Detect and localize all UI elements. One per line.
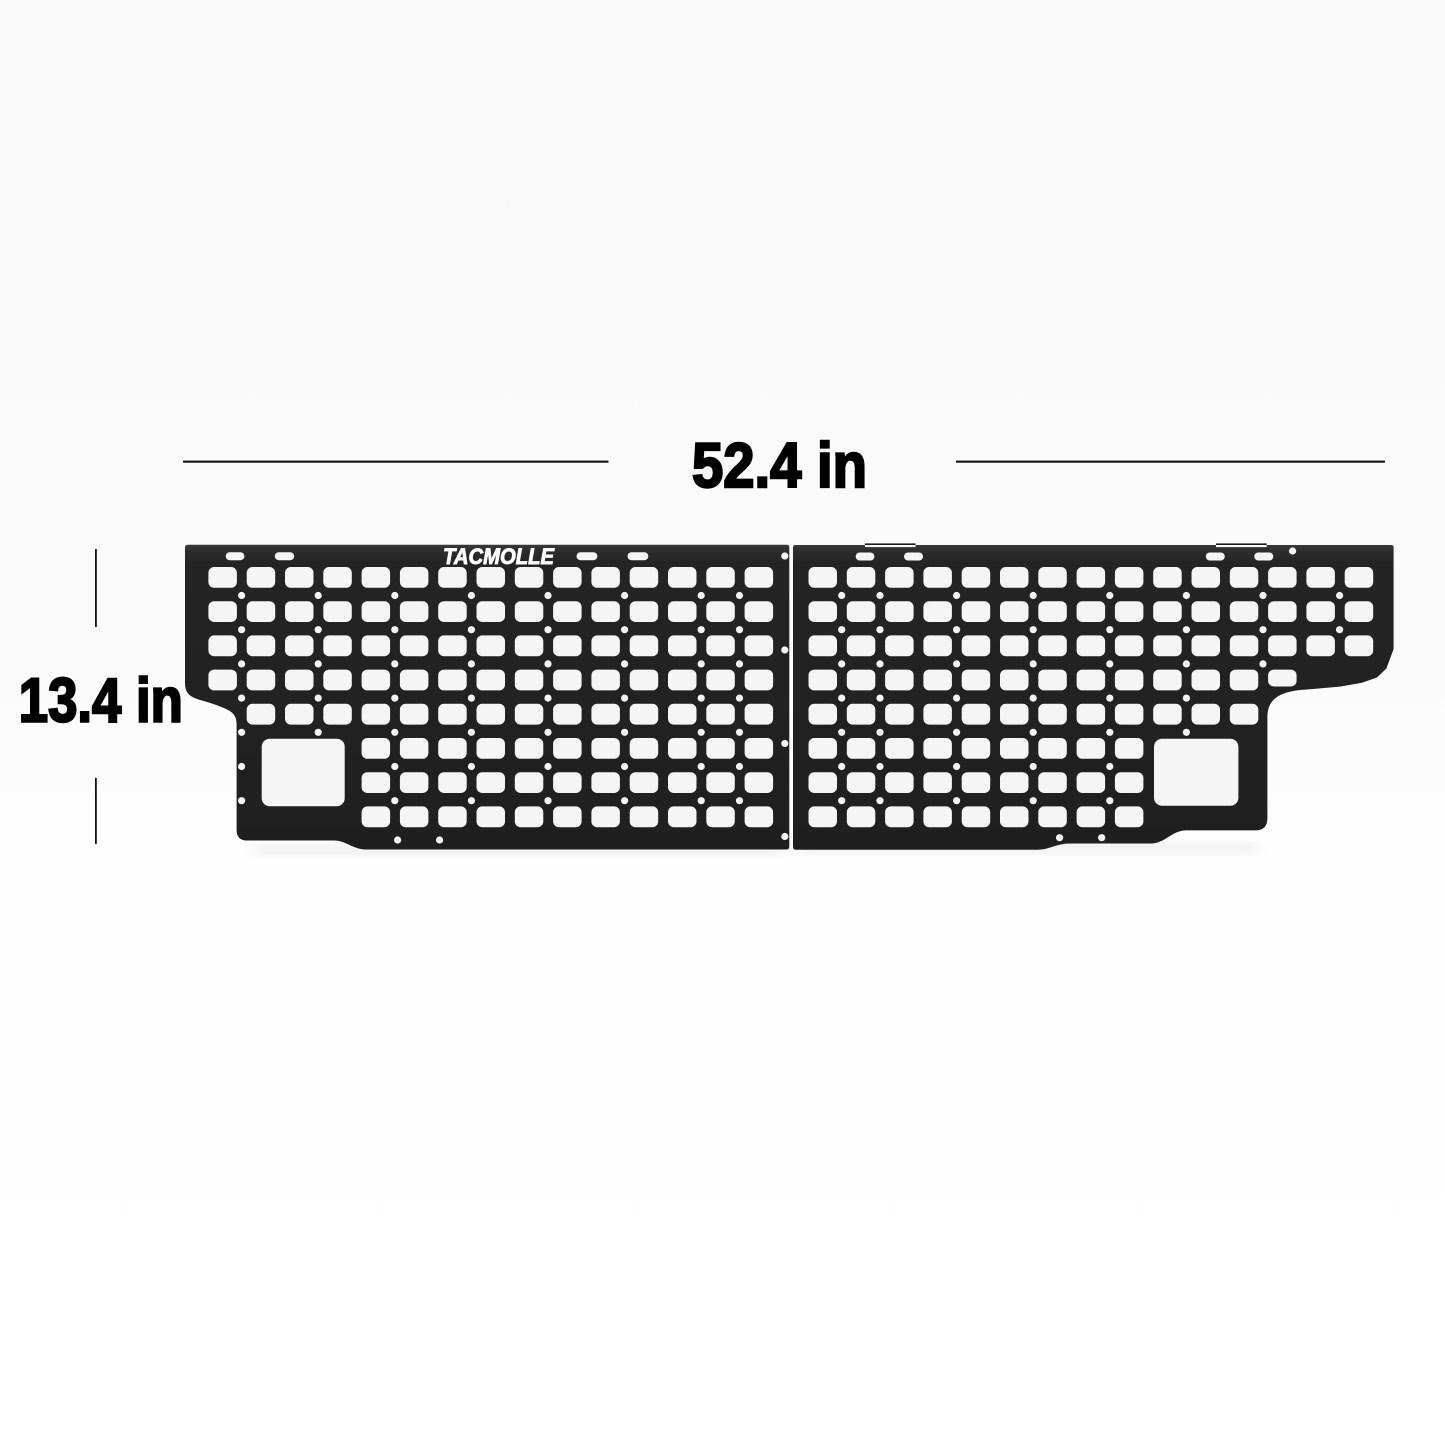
- svg-text:52.4 in: 52.4 in: [692, 431, 867, 501]
- svg-text:TACMOLLE: TACMOLLE: [443, 544, 555, 569]
- svg-text:13.4 in: 13.4 in: [19, 666, 183, 735]
